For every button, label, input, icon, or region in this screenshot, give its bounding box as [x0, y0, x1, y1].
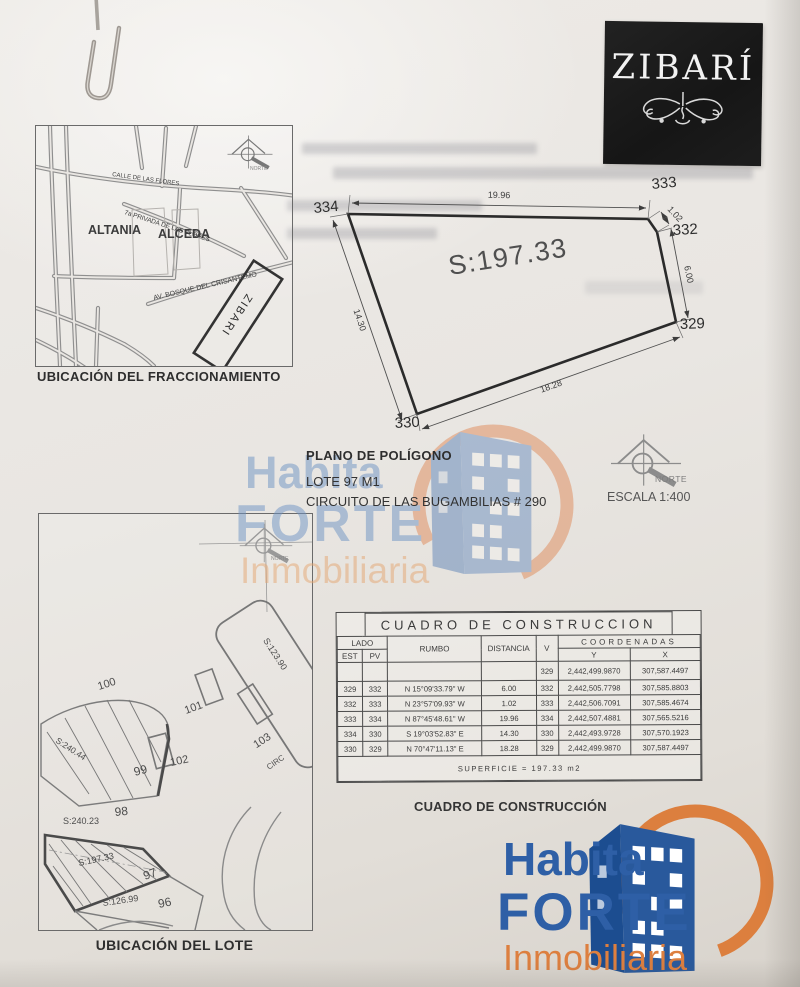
- lot-map-caption: UBICACIÓN DEL LOTE: [38, 937, 311, 953]
- surface-label-96: S:126.99: [102, 893, 139, 908]
- plan-title: PLANO DE POLÍGONO: [306, 448, 452, 463]
- dimension-corner: [661, 212, 669, 224]
- scale-label: ESCALA 1:400: [607, 490, 690, 504]
- header-rumbo: RUMBO: [387, 636, 481, 662]
- area-label: S:197.33: [446, 233, 569, 281]
- dim-label-top: 19.96: [488, 190, 511, 200]
- logo-habita: Habita: [503, 836, 644, 882]
- header-v: V: [536, 635, 558, 661]
- north-label: NORTE: [655, 474, 687, 484]
- dimension-left: [333, 220, 402, 420]
- zibari-logo: ZIBARÍ: [603, 21, 763, 166]
- lot-number-100: 100: [96, 676, 117, 693]
- street-label-circ: CIRC: [265, 753, 286, 772]
- dim-label-bottom: 18.28: [539, 378, 564, 395]
- area-label-altania: ALTANIA: [88, 223, 141, 237]
- vertex-label-330: 330: [394, 414, 420, 432]
- surface-label-97: S:197.33: [77, 851, 114, 868]
- paper-clip: [80, 0, 150, 116]
- fraccionamiento-map: ZIBARI ALTANIA ALCEDA CALLE DE LAS FLORE…: [35, 125, 293, 367]
- lot-number: LOTE 97 M1: [306, 474, 380, 489]
- lot-103: 103: [226, 684, 285, 751]
- polygon-plan-drawing: 19.96 14.30 18.28 6.00 1.02 334 333 332 …: [300, 173, 710, 449]
- north-arrow-icon: [228, 136, 273, 169]
- vertex-label-333: 333: [651, 174, 677, 193]
- bleed-text-line: [302, 143, 537, 154]
- watermark-inmobiliaria: Inmobiliaria: [240, 552, 429, 589]
- zibari-logo-text: ZIBARÍ: [604, 47, 763, 89]
- vertex-label-332: 332: [672, 221, 698, 239]
- header-est: EST: [337, 649, 362, 662]
- habitaforte-logo: Habita FORTE Inmobiliaria: [495, 806, 795, 987]
- header-lado: LADO: [337, 636, 387, 649]
- superficie-row: SUPERFICIE = 197.33 m2: [338, 755, 701, 782]
- zibari-ornament-icon: [628, 89, 739, 129]
- header-pv: PV: [362, 649, 387, 662]
- surface-label-98: S:240.23: [63, 816, 99, 826]
- dim-label-left: 14.30: [351, 308, 368, 333]
- lot-address: CIRCUITO DE LAS BUGAMBILIAS # 290: [306, 494, 546, 509]
- street-curves: [99, 807, 281, 930]
- fraccionamiento-caption: UBICACIÓN DEL FRACCIONAMIENTO: [37, 369, 295, 384]
- lot-number-103: 103: [251, 731, 273, 751]
- header-coordenadas: COORDENADAS: [558, 635, 700, 649]
- vertex-label-329: 329: [680, 315, 706, 333]
- header-distancia: DISTANCIA: [482, 635, 536, 661]
- construction-table: CUADRO DE CONSTRUCCION LADO RUMBO DISTAN…: [336, 610, 703, 783]
- north-label: NORTE: [250, 166, 268, 172]
- table-row: 3292,442,499.9870307,587.4497: [337, 661, 700, 682]
- dimension-top: [352, 203, 646, 208]
- table-title: CUADRO DE CONSTRUCCION: [365, 611, 673, 636]
- header-y: Y: [558, 648, 630, 661]
- lot-number-96: 96: [157, 894, 173, 911]
- logo-forte: FORTE: [497, 886, 692, 939]
- vertex-label-334: 334: [313, 198, 339, 217]
- surface-label-99: S:240.44: [54, 735, 88, 762]
- lot-number-98: 98: [114, 804, 129, 819]
- lot-99: S:240.44 99: [41, 700, 169, 806]
- lot-number-102: 102: [169, 753, 189, 769]
- header-x: X: [630, 648, 700, 661]
- dim-label-right: 6.00: [682, 265, 695, 284]
- scanned-survey-page: ZIBARÍ: [0, 0, 800, 987]
- logo-inmobiliaria: Inmobiliaria: [503, 940, 687, 976]
- lot-number-101: 101: [183, 699, 204, 717]
- surface-label-02: S:123.90: [261, 636, 289, 672]
- lot-number-02: 02: [311, 720, 312, 740]
